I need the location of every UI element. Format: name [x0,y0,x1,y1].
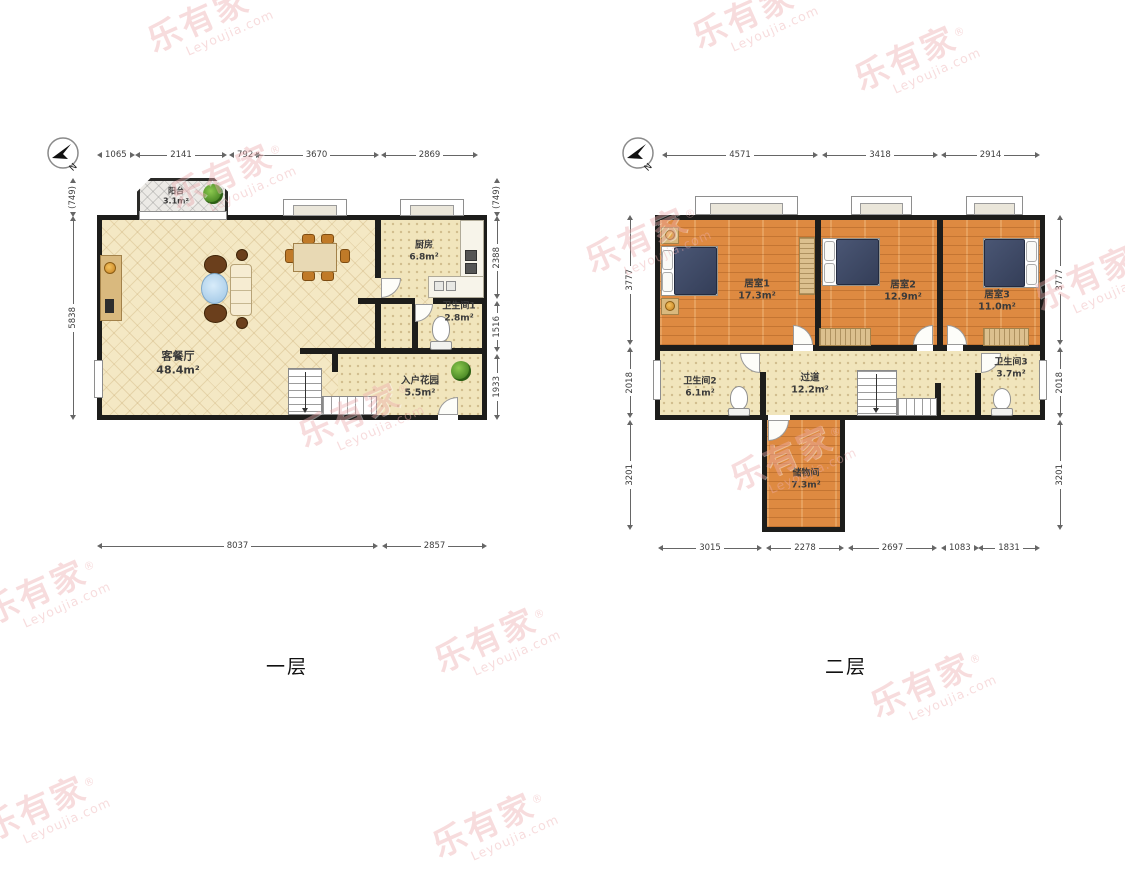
dining-table [293,243,337,272]
tv-icon [105,299,114,313]
watermark: 乐有家®Leyoujia.com [862,632,999,736]
plant-icon [203,184,223,204]
wall [375,298,381,353]
window [94,360,103,398]
window [974,203,1015,215]
wall [655,345,793,351]
wall [762,420,767,532]
room-label-bedroom1: 居室117.3m² [738,279,776,304]
room-label-bedroom3: 居室311.0m² [978,290,1016,315]
floorplan-canvas: 乐有家®Leyoujia.com 乐有家®Leyoujia.com 乐有家®Le… [0,0,1125,844]
room-label-balcony: 阳台3.1m² [163,187,189,208]
appliance-icon [465,263,477,274]
compass-icon: N [44,135,84,177]
window [860,203,903,215]
dining-chair [302,271,315,281]
dimension: 2914 [941,150,1040,160]
watermark: 乐有家®Leyoujia.com [426,587,563,691]
window [653,360,661,400]
toilet-tank [430,341,452,350]
stool [236,249,248,261]
corridor-floor [381,304,412,348]
watermark: 乐有家®Leyoujia.com [139,0,276,71]
sink-icon [434,281,444,291]
dimension: (749) [68,178,78,214]
wall [840,420,845,532]
registered-icon: ® [245,0,260,2]
lamp-icon [665,301,675,311]
floor-title-2: 二层 [825,652,867,679]
dimension: 1065 [97,150,133,160]
svg-text:N: N [643,162,655,174]
stairs [322,396,377,415]
armchair [204,304,227,323]
wall [762,527,845,532]
pillow [662,272,673,292]
wall [332,354,338,372]
plant-icon [451,361,471,381]
room-label-bathroom1: 卫生间12.8m² [442,301,475,324]
dimension: 5838 [68,216,78,420]
toilet-icon [993,388,1011,410]
wall [760,372,766,420]
sink-icon [446,281,456,291]
stool [236,317,248,329]
wall [655,415,768,420]
window [1039,360,1047,400]
dining-chair [340,249,350,263]
watermark: 乐有家®Leyoujia.com [424,772,561,876]
dimension: 1831 [978,543,1040,553]
floor-title-1: 一层 [266,652,308,679]
dimension: 4571 [662,150,818,160]
pillow [824,241,835,261]
watermark: 乐有家®Leyoujia.com [846,5,983,109]
room-label-living-dining: 客餐厅48.4m² [156,350,199,379]
bed-blanket [836,239,879,285]
dimension: 2869 [381,150,478,160]
sofa [230,264,252,316]
stairs-arrow [876,374,877,408]
lamp-icon [665,230,675,240]
lamp-icon [104,262,116,274]
wall [458,415,487,420]
toilet-tank [728,408,750,416]
armchair [204,255,227,274]
bed-blanket [674,247,717,295]
window [710,203,783,215]
dimension: 3670 [254,150,379,160]
dining-chair [321,271,334,281]
watermark: 乐有家®Leyoujia.com [684,0,821,67]
watermark: 乐有家®Leyoujia.com [0,755,113,859]
toilet-tank [991,408,1013,416]
dimension: 2857 [382,541,487,551]
watermark-cn: 乐有家 [141,0,256,60]
pillow [662,250,673,270]
wall [933,345,947,351]
room-label-storage: 储物间7.3m² [791,468,820,491]
dimension: 2018 [625,347,635,418]
dimension: 3201 [625,420,635,530]
dimension: 1516 [492,301,502,352]
room-label-kitchen: 厨房6.8m² [409,240,438,263]
watermark-en: Leyoujia.com [183,6,276,58]
wall [375,215,381,278]
wardrobe [799,237,815,295]
dimension: (749) [492,178,502,214]
dimension: 1933 [492,354,502,420]
dimension: 3418 [822,150,938,160]
dimension: 8037 [97,541,378,551]
stairs-arrow-head [302,408,308,416]
dimension: 2388 [492,216,502,299]
compass-icon: N [619,135,659,177]
coffee-table [201,273,228,304]
dimension: 3015 [658,543,762,553]
wall [975,373,981,420]
stove-icon [465,250,477,261]
window [410,205,454,216]
wall [358,298,415,304]
wardrobe [819,328,871,346]
stairs-arrow-head [873,408,879,416]
room-label-bathroom2: 卫生间26.1m² [683,376,716,399]
window [139,211,227,220]
stairs-arrow [305,372,306,408]
dimension: 792 [229,150,252,160]
dimension: 2697 [848,543,937,553]
wall [97,415,438,420]
pillow [1026,241,1037,262]
pillow [824,263,835,283]
wall [300,348,487,354]
dimension: 1083 [941,543,974,553]
room-label-corridor: 过道12.2m² [791,373,829,398]
dimension: 3201 [1055,420,1065,530]
wall [655,215,1045,220]
room-label-bathroom3: 卫生间33.7m² [994,357,1027,380]
wall [937,215,943,351]
dimension: 3777 [625,215,635,345]
svg-text:N: N [68,162,80,174]
dimension: 3777 [1055,215,1065,345]
stairs [897,398,937,416]
wardrobe [983,328,1029,346]
dimension: 2018 [1055,347,1065,418]
window [293,205,337,216]
room-label-entry-garden: 入户花园5.5m² [401,376,439,401]
dimension: 2278 [766,543,844,553]
pillow [1026,264,1037,285]
watermark: 乐有家®Leyoujia.com [0,539,113,643]
toilet-icon [730,386,748,410]
bed-blanket [984,239,1025,287]
dimension: 2141 [135,150,227,160]
room-label-bedroom2: 居室212.9m² [884,280,922,305]
